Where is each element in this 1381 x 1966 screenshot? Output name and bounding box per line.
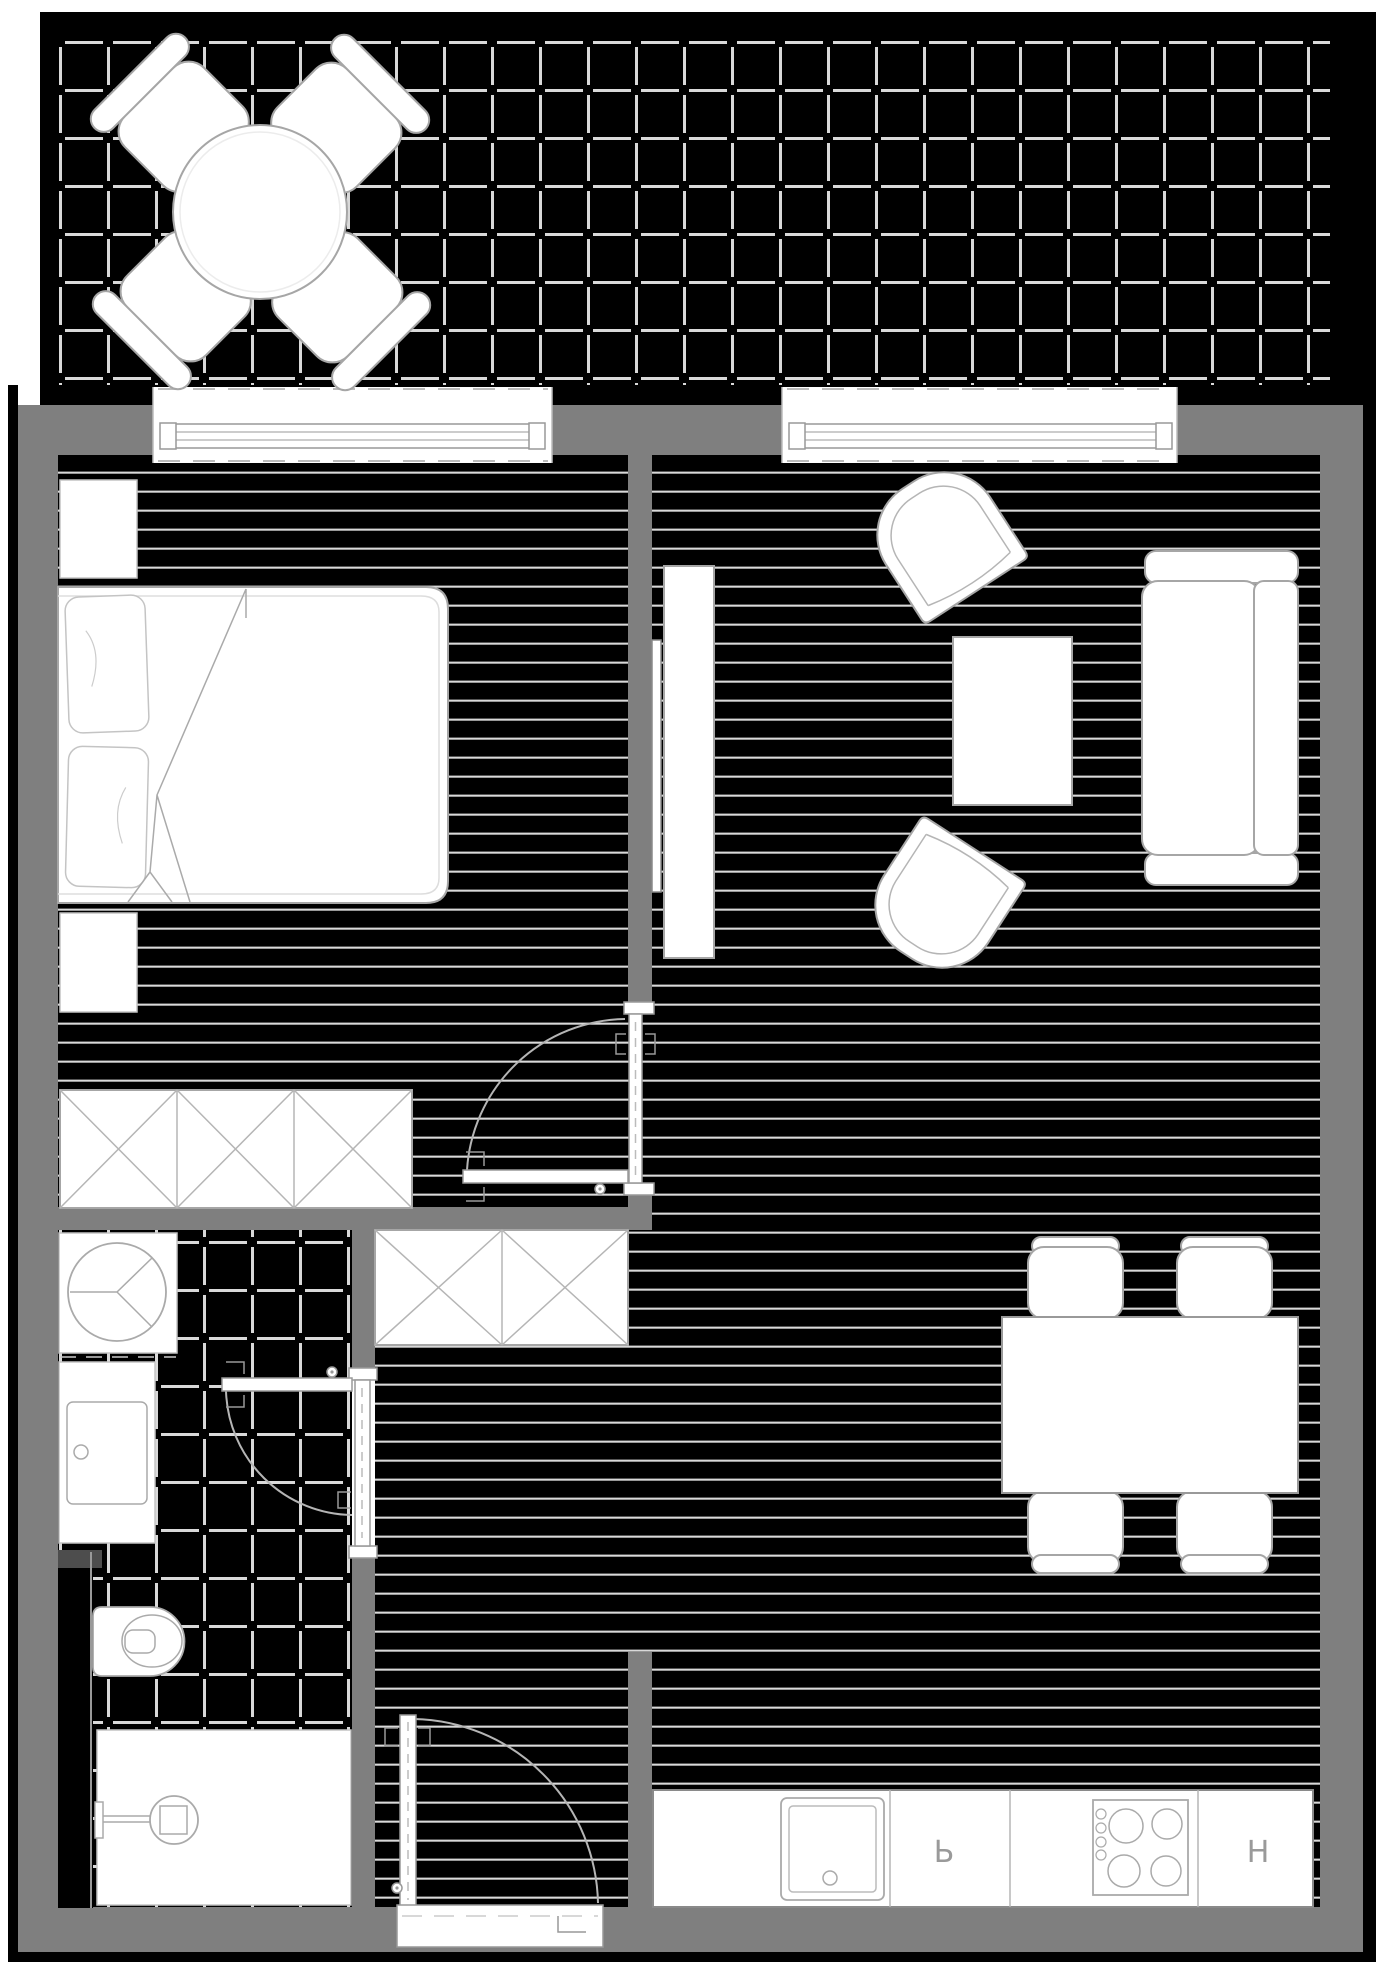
window-frame-cap (160, 423, 176, 449)
tv-stand (664, 566, 714, 958)
outer-border-bottom (8, 1952, 1376, 1962)
wall-bathroom-upper (352, 1230, 375, 1378)
window-frame-cap (1156, 423, 1172, 449)
shower-tray (97, 1730, 351, 1905)
bathroom-cabinet-sink (59, 1362, 155, 1543)
sofa-backrest (1254, 581, 1298, 855)
door-leaf-closed (397, 1905, 603, 1947)
door-leaf-open (463, 1170, 628, 1183)
outer-border-left (8, 385, 18, 1962)
wall-hall-kitchen (628, 1652, 652, 1907)
floor-plan-drawing: Ь Н (0, 0, 1381, 1966)
window-frame-cap (789, 423, 805, 449)
bathroom-partition-stub (58, 1550, 102, 1568)
window-glazing (168, 424, 537, 448)
balcony-round-table (173, 125, 347, 299)
coffee-table (953, 637, 1072, 805)
dining-chair (1028, 1491, 1123, 1563)
wall-bedroom-bottom (58, 1207, 652, 1230)
sofa-seat (1142, 581, 1260, 855)
dining-chair (1177, 1491, 1272, 1563)
window-glazing (797, 424, 1162, 448)
balcony-wall-right (1330, 12, 1363, 405)
dining-table (1002, 1317, 1298, 1493)
sofa-armrest (1145, 551, 1298, 583)
wall-bottom (18, 1907, 1363, 1952)
kitchen-sink (781, 1798, 884, 1900)
kitchen-counter: Ь Н (653, 1790, 1313, 1907)
window-living (782, 387, 1177, 463)
bedroom-wardrobe (60, 1090, 412, 1208)
washing-machine (59, 1233, 177, 1357)
toilet-flush (125, 1630, 155, 1653)
sofa-armrest (1145, 853, 1298, 885)
door-jamb (624, 1002, 654, 1014)
shower (95, 1730, 351, 1905)
wall-right (1320, 455, 1363, 1952)
nightstand (60, 480, 137, 578)
tv (652, 640, 661, 892)
counter-label-mid: Ь (934, 1835, 955, 1870)
dining-chair (1028, 1247, 1123, 1319)
wall-bathroom-lower (352, 1550, 375, 1907)
door-jamb (349, 1368, 377, 1380)
balcony-wall-top (40, 12, 1363, 40)
door-leaf-open (222, 1378, 352, 1391)
window-bedroom (153, 387, 552, 463)
dining-chair-back (1181, 1555, 1268, 1573)
window-frame-cap (529, 423, 545, 449)
door-jamb (624, 1183, 654, 1195)
wall-left (18, 455, 58, 1952)
sofa (1142, 551, 1298, 885)
dining-chair (1177, 1247, 1272, 1319)
pillow (65, 595, 150, 734)
floor-plan: Ь Н (0, 0, 1381, 1966)
wall-bedroom-living-upper (628, 455, 652, 1012)
bed (58, 587, 448, 903)
nightstand (60, 913, 137, 1012)
bathroom-partition (58, 1550, 93, 1908)
toilet (93, 1607, 185, 1676)
pillow (65, 746, 149, 888)
balcony-wall-left (40, 12, 58, 405)
dining-chair-back (1032, 1555, 1119, 1573)
outer-border-right (1363, 12, 1376, 1962)
stove (1093, 1800, 1188, 1895)
door-jamb (349, 1546, 377, 1558)
hallway-wardrobe (375, 1230, 628, 1345)
counter-label-right: Н (1247, 1835, 1270, 1870)
